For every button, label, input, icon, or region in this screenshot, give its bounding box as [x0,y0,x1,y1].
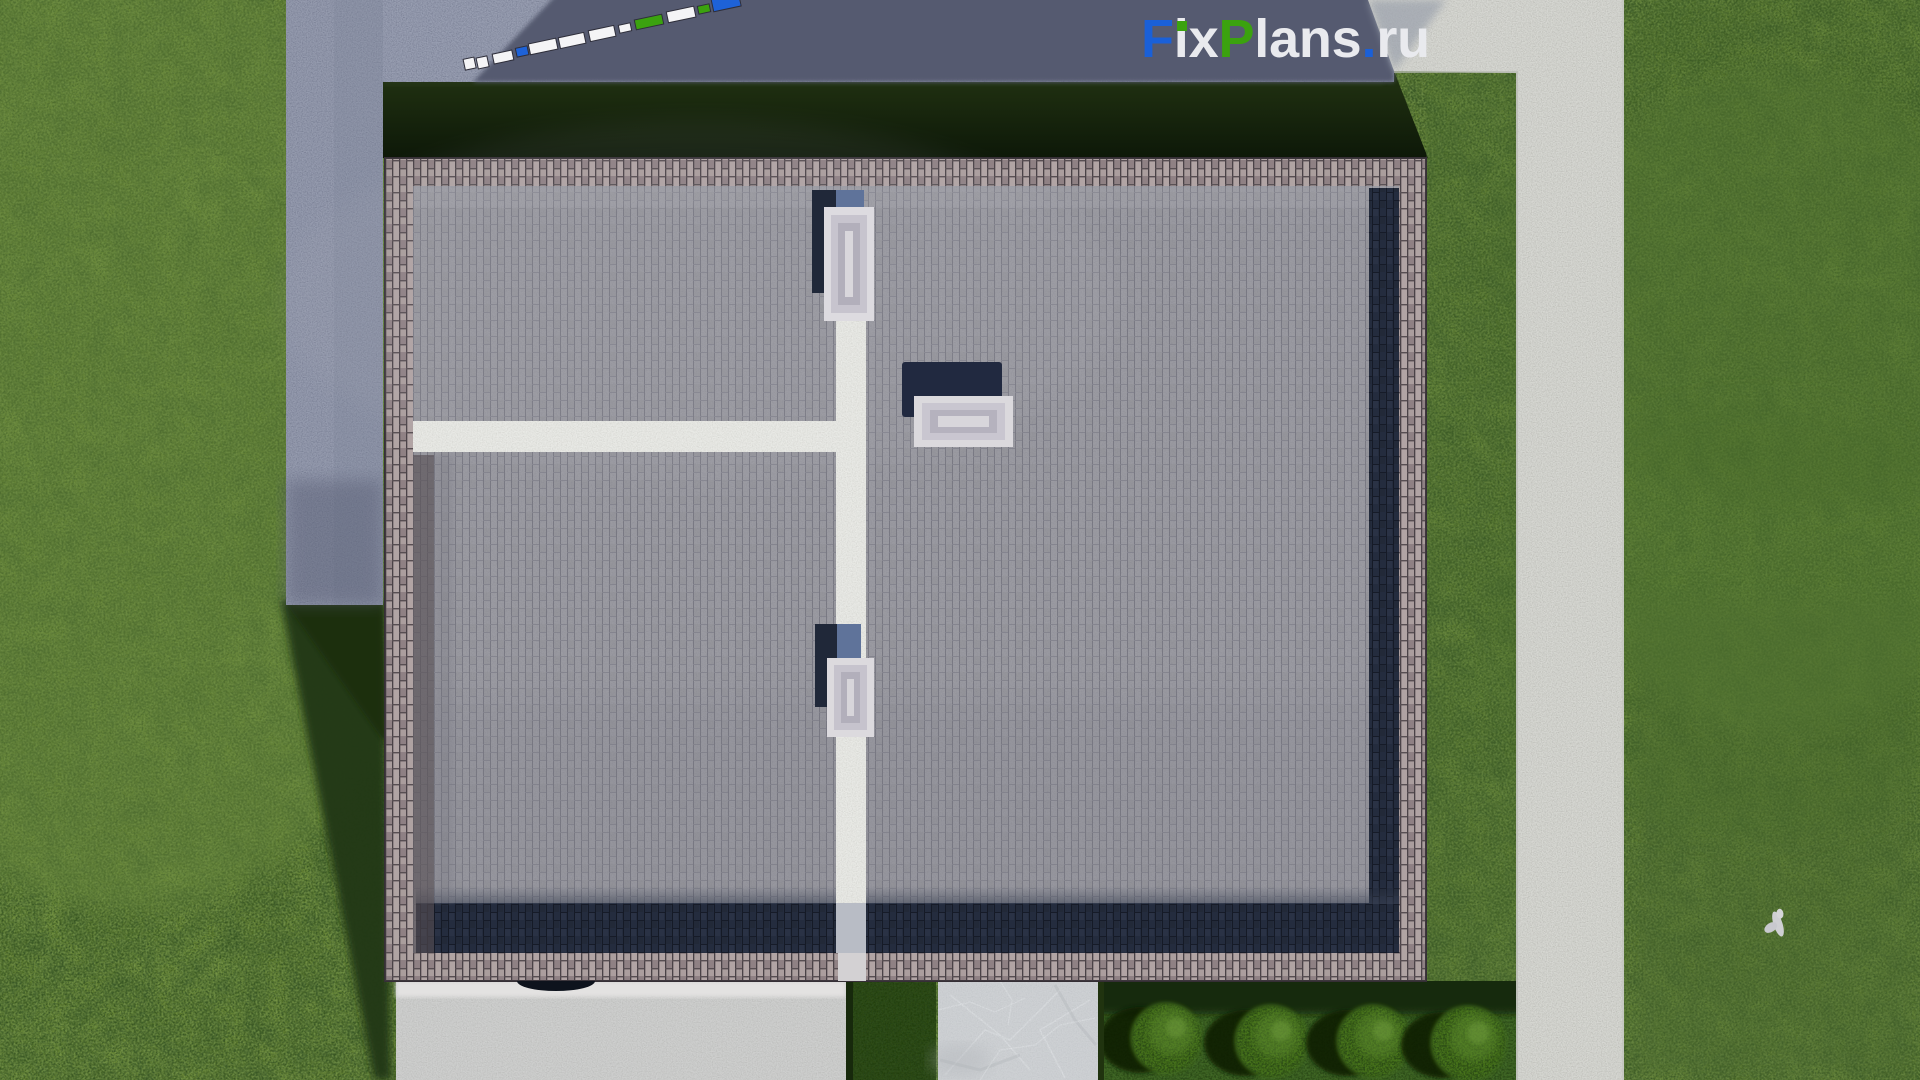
svg-text:FixPlans.ru: FixPlans.ru [1141,9,1430,69]
